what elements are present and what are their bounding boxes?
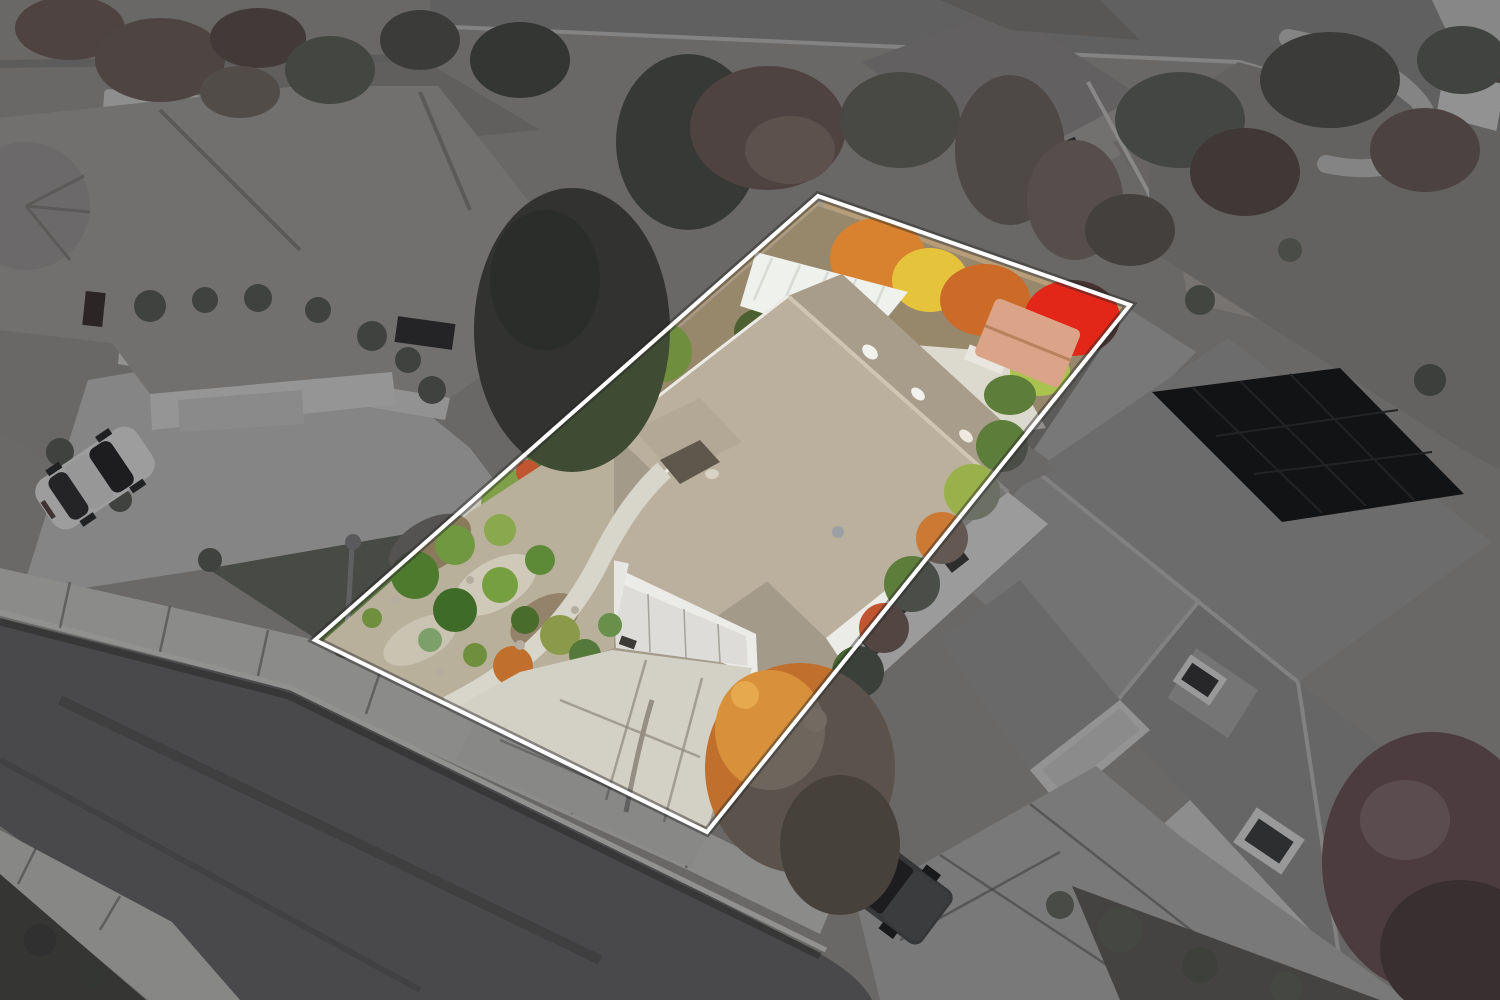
leaves [731,681,759,709]
shrub [463,643,487,667]
shrub [482,567,518,603]
rock [515,640,525,650]
shrub [984,375,1036,415]
aerial-photo [0,0,1500,1000]
shrub [433,588,477,632]
shrub [511,606,539,634]
rock [391,596,399,604]
shrub [362,608,382,628]
shrub [418,628,442,652]
shrub [484,514,516,546]
rock [436,668,444,676]
rock [571,606,579,614]
satellite-dish [832,526,844,538]
roof-vent [705,469,719,479]
rock [466,576,474,584]
shrub [598,613,622,637]
shrub [525,545,555,575]
